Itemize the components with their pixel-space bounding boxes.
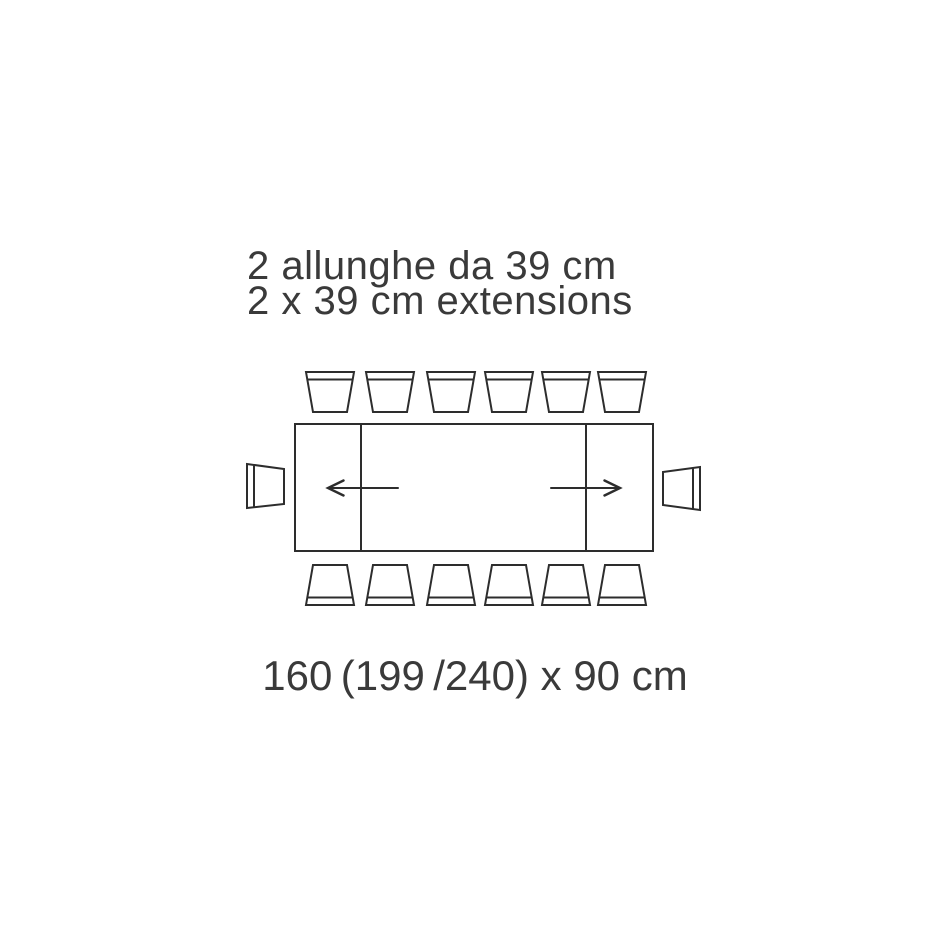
chair-icon bbox=[542, 565, 590, 605]
chair-icon bbox=[427, 565, 475, 605]
chair-left-end-icon bbox=[247, 464, 284, 508]
chair-icon bbox=[485, 372, 533, 412]
table-plan-diagram bbox=[0, 0, 950, 950]
chair-icon bbox=[598, 565, 646, 605]
extension-arrow-left-icon bbox=[328, 481, 398, 496]
diagram-canvas: 2 allunghe da 39 cm 2 x 39 cm extensions bbox=[0, 0, 950, 950]
chair-row-top bbox=[306, 372, 646, 412]
chair-icon bbox=[542, 372, 590, 412]
chair-icon bbox=[485, 565, 533, 605]
dimensions-label: 160 (199 /240) x 90 cm bbox=[0, 652, 950, 700]
chair-icon bbox=[366, 372, 414, 412]
chair-icon bbox=[366, 565, 414, 605]
chair-icon bbox=[598, 372, 646, 412]
chair-icon bbox=[427, 372, 475, 412]
chair-icon bbox=[306, 372, 354, 412]
chair-icon bbox=[306, 565, 354, 605]
chair-right-end-icon bbox=[663, 467, 700, 510]
chair-row-bottom bbox=[306, 565, 646, 605]
